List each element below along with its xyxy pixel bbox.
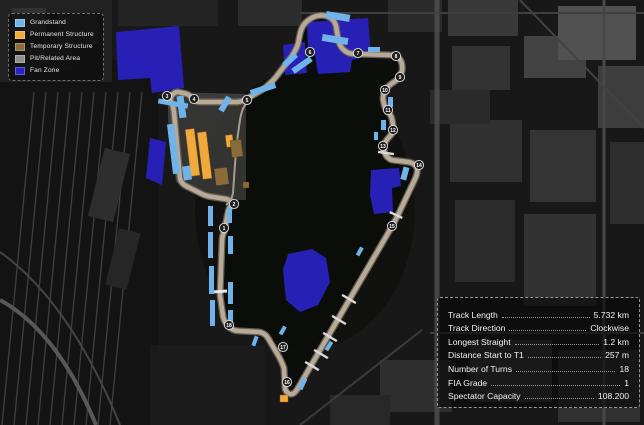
turn-marker-1: 1	[219, 223, 228, 232]
turn-marker-5: 5	[242, 95, 251, 104]
stat-value: Clockwise	[590, 323, 629, 333]
legend-color-swatch	[15, 31, 25, 39]
svg-text:16: 16	[284, 380, 290, 386]
legend-item-label: Permanent Structure	[30, 31, 94, 39]
stat-row: Spectator Capacity108.200	[448, 388, 629, 402]
stat-label: FIA Grade	[448, 378, 487, 388]
turn-marker-18: 18	[224, 320, 233, 329]
svg-text:7: 7	[357, 51, 360, 57]
stat-value: 1.2 km	[603, 337, 629, 347]
turn-marker-7: 7	[353, 48, 362, 57]
turn-marker-2: 2	[229, 199, 238, 208]
legend-item-label: Pit/Related Area	[30, 55, 80, 63]
svg-text:18: 18	[226, 323, 232, 329]
legend-item: Grandstand	[15, 19, 97, 27]
legend-item-label: Temporary Structure	[30, 43, 93, 51]
stat-value: 108.200	[598, 391, 629, 401]
stat-label: Longest Straight	[448, 337, 511, 347]
svg-text:9: 9	[399, 75, 402, 81]
dotted-leader	[515, 344, 600, 345]
turn-marker-13: 13	[378, 141, 387, 150]
turn-marker-4: 4	[189, 94, 198, 103]
legend-color-swatch	[15, 67, 25, 75]
stat-row: Track Length5.732 km	[448, 306, 629, 320]
stat-row: Track DirectionClockwise	[448, 320, 629, 334]
legend-color-swatch	[15, 19, 25, 27]
legend-item: Permanent Structure	[15, 31, 97, 39]
svg-text:5: 5	[246, 98, 249, 104]
stat-row: Distance Start to T1257 m	[448, 347, 629, 361]
svg-text:14: 14	[416, 163, 422, 169]
legend-rows: GrandstandPermanent StructureTemporary S…	[15, 19, 97, 75]
track-stats-rows: Track Length5.732 kmTrack DirectionClock…	[448, 306, 629, 401]
legend-item-label: Grandstand	[30, 19, 66, 27]
svg-text:4: 4	[193, 97, 196, 103]
turn-marker-15: 15	[387, 221, 396, 230]
svg-text:11: 11	[385, 108, 391, 114]
turn-marker-11: 11	[383, 105, 392, 114]
svg-text:1: 1	[223, 226, 226, 232]
stat-row: FIA Grade1	[448, 374, 629, 388]
dotted-leader	[525, 398, 594, 399]
svg-text:15: 15	[389, 224, 395, 230]
legend-color-swatch	[15, 43, 25, 51]
stat-value: 1	[624, 378, 629, 388]
legend-item: Fan Zone	[15, 67, 97, 75]
legend-panel: GrandstandPermanent StructureTemporary S…	[8, 13, 104, 81]
svg-text:17: 17	[280, 345, 286, 351]
turn-marker-16: 16	[282, 377, 291, 386]
turn-marker-12: 12	[388, 125, 397, 134]
legend-item: Pit/Related Area	[15, 55, 97, 63]
circuit-map: 123456789101112131415161718 GrandstandPe…	[0, 0, 644, 425]
stat-value: 5.732 km	[594, 310, 629, 320]
turn-marker-3: 3	[162, 91, 171, 100]
legend-item: Temporary Structure	[15, 43, 97, 51]
stat-row: Number of Turns18	[448, 360, 629, 374]
svg-text:8: 8	[395, 54, 398, 60]
legend-color-swatch	[15, 55, 25, 63]
stat-row: Longest Straight1.2 km	[448, 333, 629, 347]
dotted-leader	[502, 317, 590, 318]
svg-text:3: 3	[166, 94, 169, 100]
svg-text:6: 6	[309, 50, 312, 56]
turn-marker-8: 8	[391, 51, 400, 60]
legend-item-label: Fan Zone	[30, 67, 59, 75]
svg-text:2: 2	[233, 202, 236, 208]
dotted-leader	[509, 330, 586, 331]
dotted-leader	[516, 371, 615, 372]
stat-value: 18	[619, 364, 629, 374]
dotted-leader	[528, 357, 601, 358]
turn-marker-14: 14	[414, 160, 423, 169]
turn-marker-9: 9	[395, 72, 404, 81]
stat-value: 257 m	[605, 350, 629, 360]
turn-marker-17: 17	[278, 342, 287, 351]
stat-label: Spectator Capacity	[448, 391, 521, 401]
svg-text:10: 10	[382, 88, 388, 94]
svg-text:12: 12	[390, 128, 396, 134]
track-stats-panel: Track Length5.732 kmTrack DirectionClock…	[437, 297, 640, 408]
stat-label: Distance Start to T1	[448, 350, 524, 360]
turn-marker-6: 6	[305, 47, 314, 56]
dotted-leader	[491, 385, 620, 386]
stat-label: Track Direction	[448, 323, 505, 333]
svg-text:13: 13	[380, 144, 386, 150]
stat-label: Number of Turns	[448, 364, 512, 374]
turn-marker-10: 10	[380, 85, 389, 94]
stat-label: Track Length	[448, 310, 498, 320]
